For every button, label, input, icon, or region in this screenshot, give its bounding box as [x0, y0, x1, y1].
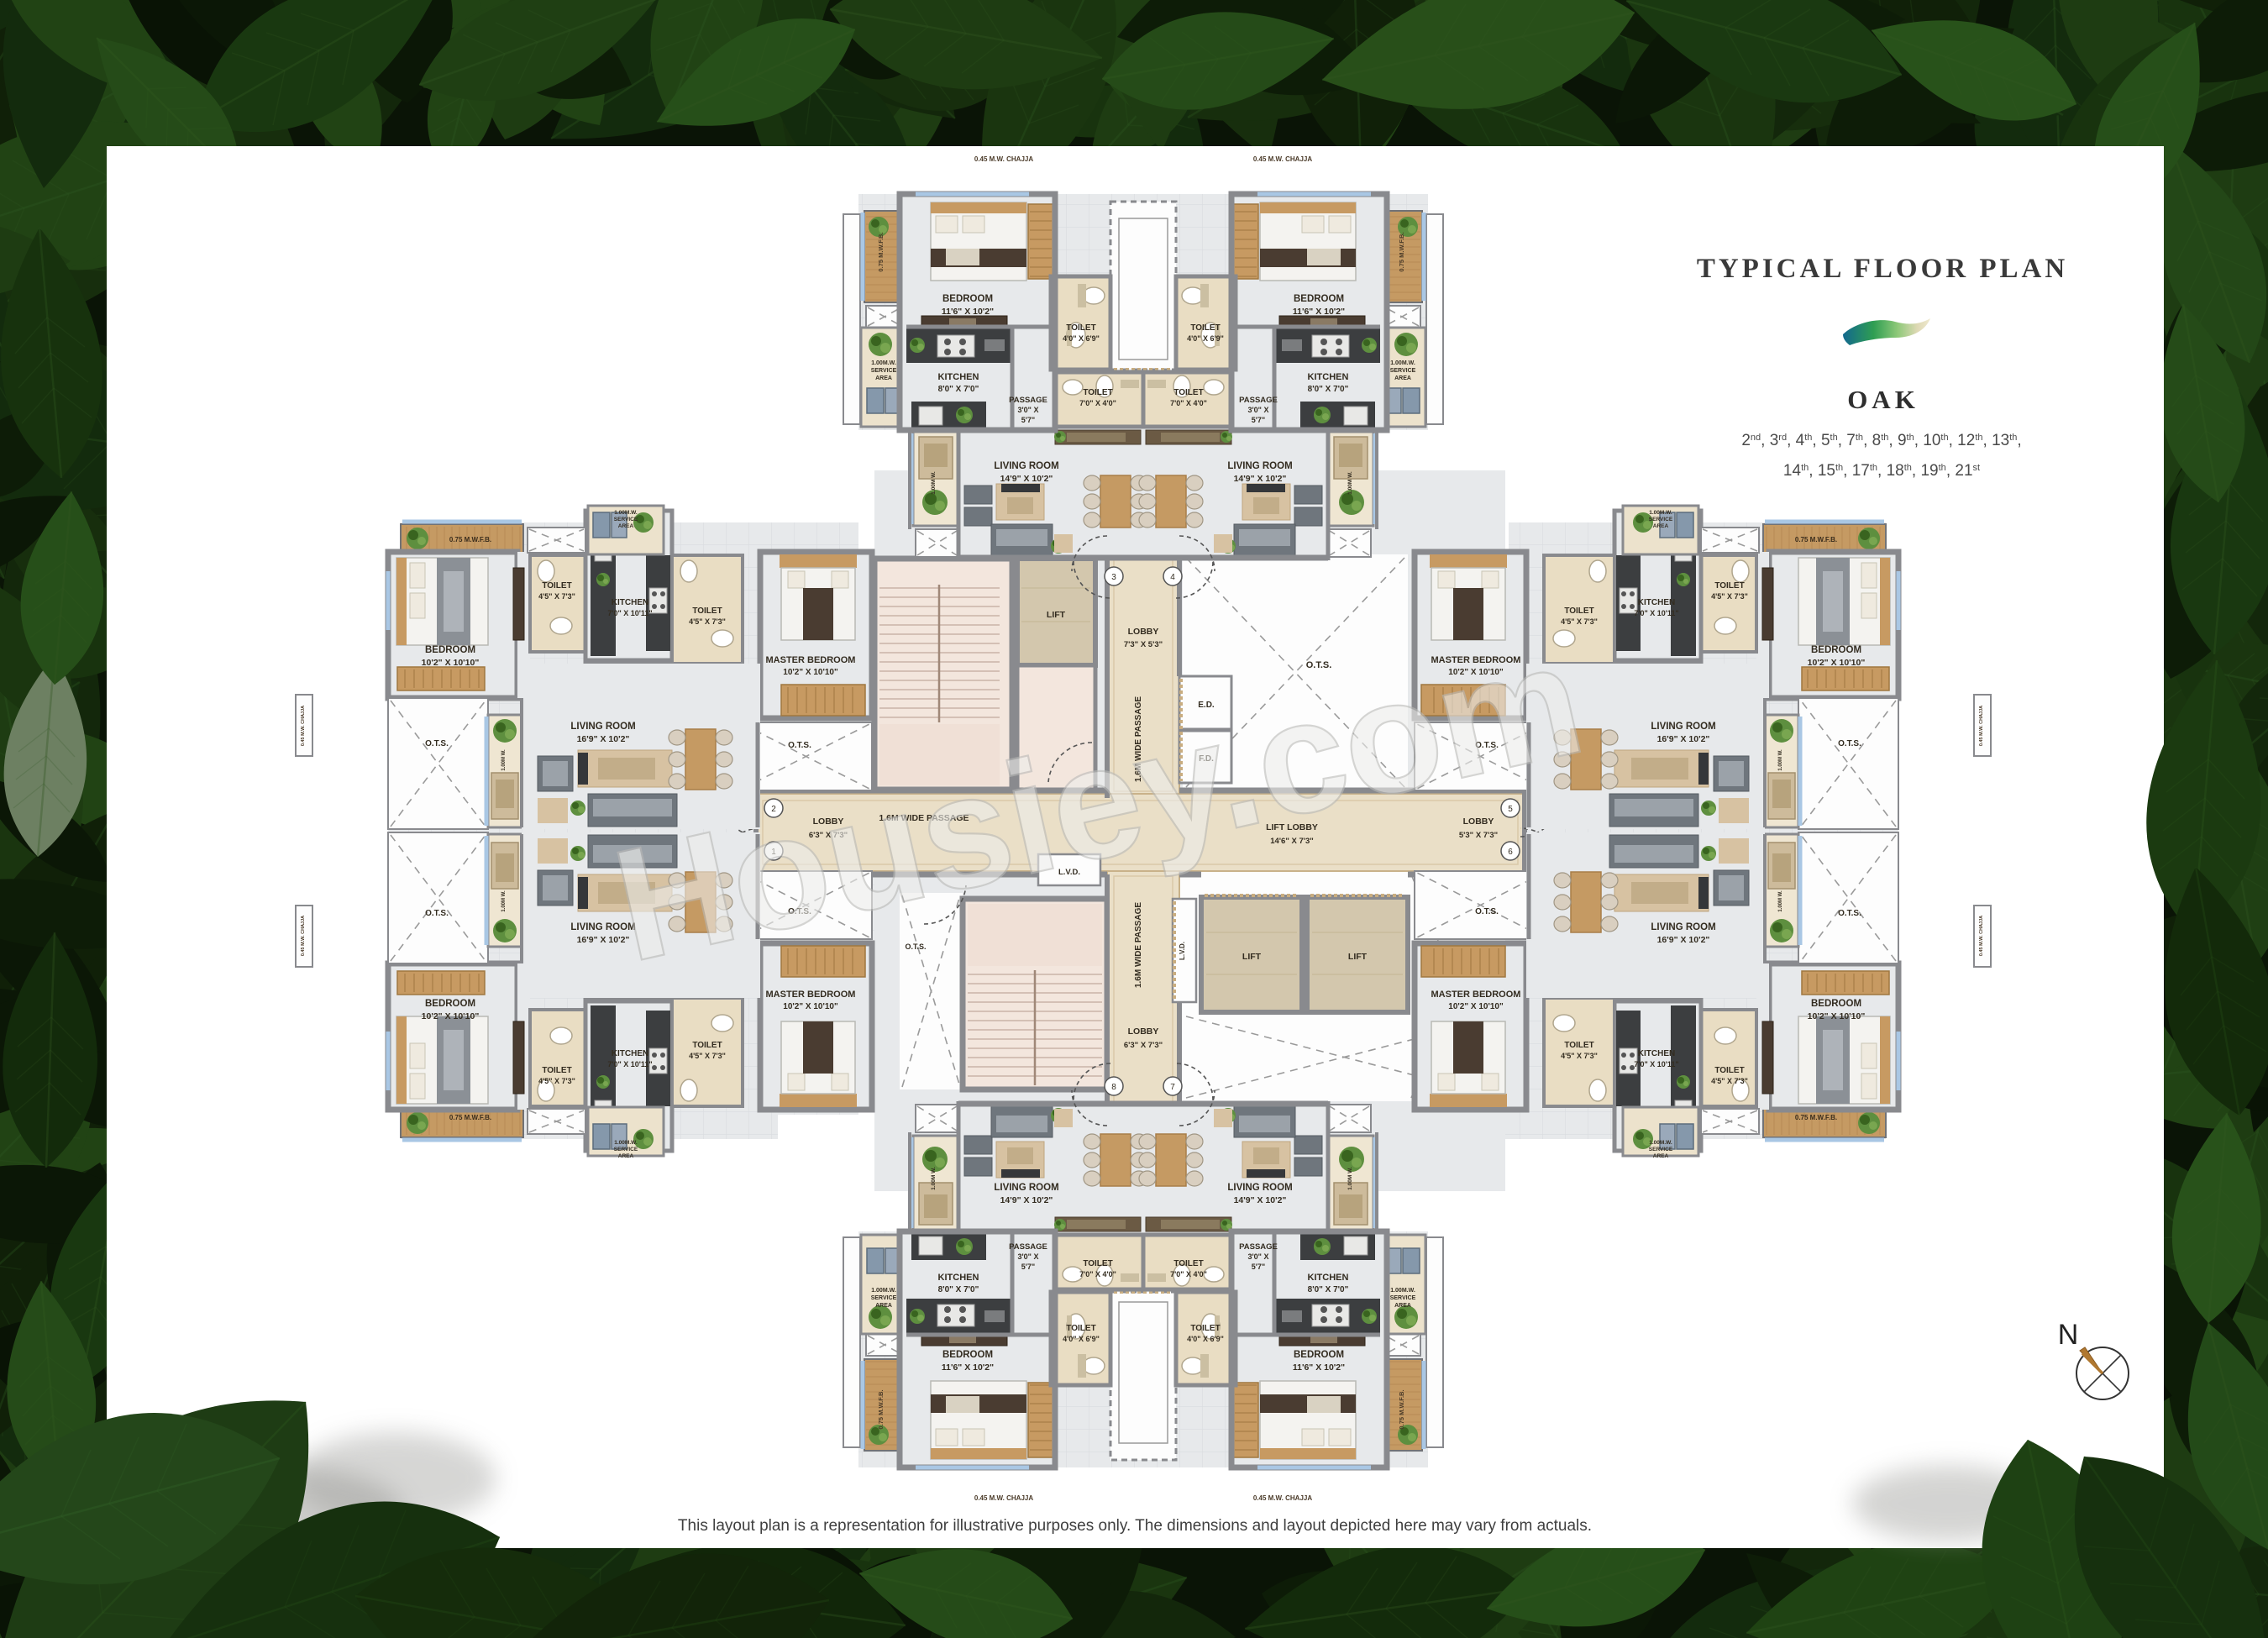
svg-text:LOBBY: LOBBY — [1128, 1026, 1159, 1037]
svg-text:7'0" X 4'0": 7'0" X 4'0" — [1170, 399, 1207, 407]
svg-text:8'0" X 7'0": 8'0" X 7'0" — [938, 1285, 979, 1294]
svg-text:16'9" X 10'2": 16'9" X 10'2" — [1657, 734, 1710, 744]
svg-text:O.T.S.: O.T.S. — [1838, 739, 1861, 748]
svg-text:8'0" X 7'0": 8'0" X 7'0" — [1308, 385, 1349, 394]
svg-text:AREA: AREA — [618, 1153, 634, 1159]
svg-text:LIVING ROOM: LIVING ROOM — [570, 722, 635, 732]
svg-text:O.T.S.: O.T.S. — [425, 739, 449, 748]
svg-text:4: 4 — [1170, 573, 1175, 582]
svg-text:TYPICAL FLOOR PLAN: TYPICAL FLOOR PLAN — [1697, 254, 2068, 284]
svg-text:0.45 M.W. CHAJJA: 0.45 M.W. CHAJJA — [301, 706, 306, 746]
svg-text:0.45 M.W. CHAJJA: 0.45 M.W. CHAJJA — [1979, 916, 1984, 956]
svg-text:14th, 15th, 17th, 18th, 19th,: 14th, 15th, 17th, 18th, 19th, 21st — [1783, 462, 1980, 480]
svg-text:1.00M W.: 1.00M W. — [1778, 749, 1783, 771]
svg-text:3'0" X: 3'0" X — [1018, 406, 1039, 414]
svg-text:8'0" X 7'0": 8'0" X 7'0" — [938, 385, 979, 394]
svg-text:6'3" X 7'3": 6'3" X 7'3" — [1124, 1041, 1163, 1050]
svg-text:7'0" X 4'0": 7'0" X 4'0" — [1079, 1270, 1116, 1278]
svg-text:KITCHEN: KITCHEN — [612, 1049, 648, 1058]
svg-text:1.00M W.: 1.00M W. — [1347, 471, 1353, 495]
svg-text:LOBBY: LOBBY — [1463, 816, 1494, 827]
svg-text:SERVICE: SERVICE — [1390, 1295, 1416, 1301]
svg-text:7'0" X 10'11": 7'0" X 10'11" — [607, 1060, 652, 1068]
svg-text:BEDROOM: BEDROOM — [942, 1350, 993, 1360]
svg-text:7'0" X 4'0": 7'0" X 4'0" — [1079, 399, 1116, 407]
svg-text:O.T.S.: O.T.S. — [425, 909, 449, 918]
svg-text:1.00M W.: 1.00M W. — [501, 890, 507, 912]
svg-text:AREA: AREA — [618, 523, 634, 529]
svg-text:0.75 M.W.F.B.: 0.75 M.W.F.B. — [1795, 536, 1837, 543]
svg-text:KITCHEN: KITCHEN — [938, 372, 979, 382]
svg-text:AREA: AREA — [1653, 523, 1669, 529]
svg-text:AREA: AREA — [1653, 1153, 1669, 1159]
svg-text:1.00M.W.: 1.00M.W. — [871, 360, 896, 366]
svg-text:8'0" X 7'0": 8'0" X 7'0" — [1308, 1285, 1349, 1294]
svg-text:4'5" X 7'3": 4'5" X 7'3" — [1561, 617, 1598, 626]
svg-text:PASSAGE: PASSAGE — [1239, 396, 1278, 405]
svg-text:7'0" X 4'0": 7'0" X 4'0" — [1170, 1270, 1207, 1278]
svg-text:0.75 M.W.F.B.: 0.75 M.W.F.B. — [877, 1389, 885, 1429]
svg-text:AREA: AREA — [875, 375, 892, 381]
svg-text:LIFT: LIFT — [1348, 952, 1368, 962]
svg-text:OAK: OAK — [1847, 385, 1919, 414]
svg-text:4'5" X 7'3": 4'5" X 7'3" — [1711, 1077, 1748, 1085]
svg-text:16'9" X 10'2": 16'9" X 10'2" — [577, 734, 630, 744]
svg-text:1.00M.W.: 1.00M.W. — [614, 510, 638, 516]
svg-text:16'9" X 10'2": 16'9" X 10'2" — [1657, 935, 1710, 945]
svg-text:O.T.S.: O.T.S. — [1475, 907, 1499, 916]
svg-text:KITCHEN: KITCHEN — [612, 598, 648, 607]
svg-text:3'0" X: 3'0" X — [1248, 406, 1269, 414]
svg-text:0.45 M.W. CHAJJA: 0.45 M.W. CHAJJA — [1253, 1494, 1312, 1502]
svg-text:5'7": 5'7" — [1252, 1263, 1265, 1271]
svg-text:SERVICE: SERVICE — [1390, 368, 1416, 374]
svg-text:O.T.S.: O.T.S. — [1838, 909, 1861, 918]
svg-text:1.00M W.: 1.00M W. — [931, 471, 937, 495]
svg-text:SERVICE: SERVICE — [871, 1295, 897, 1301]
svg-text:KITCHEN: KITCHEN — [938, 1273, 979, 1283]
svg-text:5'7": 5'7" — [1252, 416, 1265, 424]
svg-text:1.00M W.: 1.00M W. — [501, 749, 507, 771]
svg-text:LIFT: LIFT — [1047, 610, 1066, 620]
svg-text:10'2" X 10'10": 10'2" X 10'10" — [1448, 1002, 1504, 1011]
svg-text:4'0" X 6'9": 4'0" X 6'9" — [1187, 334, 1224, 343]
svg-text:TOILET: TOILET — [1190, 323, 1220, 333]
svg-text:LIVING ROOM: LIVING ROOM — [1227, 461, 1292, 471]
svg-text:TOILET: TOILET — [1564, 606, 1593, 616]
svg-text:1.00M.W.: 1.00M.W. — [614, 1140, 638, 1146]
svg-text:TOILET: TOILET — [542, 581, 571, 591]
svg-text:L.V.D.: L.V.D. — [1179, 942, 1186, 960]
svg-text:TOILET: TOILET — [1714, 1066, 1744, 1075]
svg-text:AREA: AREA — [1394, 375, 1411, 381]
svg-text:1.00M.W.: 1.00M.W. — [1390, 1288, 1415, 1294]
svg-text:0.75 M.W.F.B.: 0.75 M.W.F.B. — [1398, 1389, 1405, 1429]
svg-text:4'5" X 7'3": 4'5" X 7'3" — [1561, 1052, 1598, 1060]
svg-text:0.75 M.W.F.B.: 0.75 M.W.F.B. — [449, 536, 491, 543]
svg-text:11'6" X 10'2": 11'6" X 10'2" — [1293, 307, 1345, 317]
svg-text:SERVICE: SERVICE — [614, 1147, 638, 1152]
svg-text:TOILET: TOILET — [1066, 1324, 1095, 1333]
svg-text:LIVING ROOM: LIVING ROOM — [1651, 722, 1715, 732]
svg-text:5'7": 5'7" — [1021, 416, 1035, 424]
svg-text:5'7": 5'7" — [1021, 1263, 1035, 1271]
svg-text:TOILET: TOILET — [542, 1066, 571, 1075]
svg-text:0.75 M.W.F.B.: 0.75 M.W.F.B. — [449, 1114, 491, 1121]
svg-text:O.T.S.: O.T.S. — [788, 741, 811, 750]
svg-text:LIVING ROOM: LIVING ROOM — [1227, 1183, 1292, 1193]
svg-text:MASTER BEDROOM: MASTER BEDROOM — [766, 655, 856, 665]
svg-text:3'0" X: 3'0" X — [1248, 1252, 1269, 1261]
svg-text:PASSAGE: PASSAGE — [1009, 1242, 1047, 1252]
svg-text:BEDROOM: BEDROOM — [425, 645, 475, 655]
svg-text:10'2" X 10'10": 10'2" X 10'10" — [422, 658, 480, 668]
svg-text:14'9" X 10'2": 14'9" X 10'2" — [1234, 1195, 1287, 1205]
svg-text:4'0" X 6'9": 4'0" X 6'9" — [1187, 1335, 1224, 1343]
svg-text:7'0" X 10'11": 7'0" X 10'11" — [1634, 1060, 1678, 1068]
svg-text:TOILET: TOILET — [1714, 581, 1744, 591]
svg-text:MASTER BEDROOM: MASTER BEDROOM — [766, 990, 856, 1000]
svg-text:4'0" X 6'9": 4'0" X 6'9" — [1063, 334, 1100, 343]
svg-text:7'0" X 10'11": 7'0" X 10'11" — [607, 609, 652, 617]
svg-text:11'6" X 10'2": 11'6" X 10'2" — [942, 1362, 994, 1373]
svg-text:10'2" X 10'10": 10'2" X 10'10" — [1808, 658, 1866, 668]
svg-text:BEDROOM: BEDROOM — [942, 294, 993, 304]
svg-text:BEDROOM: BEDROOM — [1811, 999, 1861, 1009]
svg-text:1.00M W.: 1.00M W. — [931, 1167, 937, 1190]
svg-text:14'9" X 10'2": 14'9" X 10'2" — [1000, 1195, 1053, 1205]
svg-text:TOILET: TOILET — [1173, 388, 1203, 397]
svg-text:PASSAGE: PASSAGE — [1239, 1242, 1278, 1252]
svg-text:16'9" X 10'2": 16'9" X 10'2" — [577, 935, 630, 945]
svg-text:6: 6 — [1508, 848, 1513, 857]
svg-text:10'2" X 10'10": 10'2" X 10'10" — [783, 668, 838, 677]
svg-text:10'2" X 10'10": 10'2" X 10'10" — [422, 1011, 480, 1021]
svg-text:BEDROOM: BEDROOM — [1811, 645, 1861, 655]
svg-text:4'5" X 7'3": 4'5" X 7'3" — [689, 617, 726, 626]
svg-text:SERVICE: SERVICE — [871, 368, 897, 374]
svg-text:7'3" X 5'3": 7'3" X 5'3" — [1124, 640, 1163, 649]
svg-text:TOILET: TOILET — [692, 1041, 722, 1050]
svg-text:0.45 M.W. CHAJJA: 0.45 M.W. CHAJJA — [301, 916, 306, 956]
svg-text:1.00M W.: 1.00M W. — [1778, 890, 1783, 912]
svg-text:14'9" X 10'2": 14'9" X 10'2" — [1000, 474, 1053, 484]
svg-text:LIVING ROOM: LIVING ROOM — [994, 1183, 1058, 1193]
svg-text:5: 5 — [1508, 805, 1513, 814]
svg-text:11'6" X 10'2": 11'6" X 10'2" — [1293, 1362, 1345, 1373]
svg-text:1.00M.W.: 1.00M.W. — [1649, 1140, 1672, 1146]
svg-text:1.00M.W.: 1.00M.W. — [1649, 510, 1672, 516]
svg-text:TOILET: TOILET — [1083, 388, 1112, 397]
svg-text:10'2" X 10'10": 10'2" X 10'10" — [1808, 1011, 1866, 1021]
svg-text:1.00M W.: 1.00M W. — [1347, 1167, 1353, 1190]
svg-text:0.75 M.W.F.B.: 0.75 M.W.F.B. — [1795, 1114, 1837, 1121]
svg-text:8: 8 — [1111, 1083, 1116, 1092]
svg-text:5'3" X 7'3": 5'3" X 7'3" — [1459, 831, 1498, 840]
svg-text:LIFT: LIFT — [1242, 952, 1262, 962]
svg-text:KITCHEN: KITCHEN — [1308, 1273, 1349, 1283]
svg-text:SERVICE: SERVICE — [1649, 517, 1673, 522]
svg-text:14'9" X 10'2": 14'9" X 10'2" — [1234, 474, 1287, 484]
svg-text:4'5" X 7'3": 4'5" X 7'3" — [689, 1052, 726, 1060]
svg-text:1.00M.W.: 1.00M.W. — [1390, 360, 1415, 366]
svg-text:0.45 M.W. CHAJJA: 0.45 M.W. CHAJJA — [974, 155, 1033, 163]
svg-text:4'5" X 7'3": 4'5" X 7'3" — [538, 1077, 575, 1085]
svg-text:SERVICE: SERVICE — [614, 517, 638, 522]
svg-text:0.45 M.W. CHAJJA: 0.45 M.W. CHAJJA — [1979, 706, 1984, 746]
svg-text:TOILET: TOILET — [1083, 1259, 1112, 1268]
svg-text:LIVING ROOM: LIVING ROOM — [994, 461, 1058, 471]
svg-text:N: N — [2058, 1319, 2079, 1351]
svg-text:BEDROOM: BEDROOM — [1294, 1350, 1344, 1360]
svg-text:7'0" X 10'11": 7'0" X 10'11" — [1634, 609, 1678, 617]
svg-text:11'6" X 10'2": 11'6" X 10'2" — [942, 307, 994, 317]
svg-text:KITCHEN: KITCHEN — [1308, 372, 1349, 382]
svg-text:SERVICE: SERVICE — [1649, 1147, 1673, 1152]
svg-text:0.75 M.W.F.B.: 0.75 M.W.F.B. — [1398, 232, 1405, 271]
svg-text:TOILET: TOILET — [1564, 1041, 1593, 1050]
svg-text:0.75 M.W.F.B.: 0.75 M.W.F.B. — [877, 232, 885, 271]
svg-text:1.00M.W.: 1.00M.W. — [871, 1288, 896, 1294]
svg-text:LIVING ROOM: LIVING ROOM — [1651, 922, 1715, 932]
svg-text:BEDROOM: BEDROOM — [1294, 294, 1344, 304]
svg-text:0.45 M.W. CHAJJA: 0.45 M.W. CHAJJA — [974, 1494, 1033, 1502]
svg-text:TOILET: TOILET — [692, 606, 722, 616]
svg-text:TOILET: TOILET — [1190, 1324, 1220, 1333]
svg-text:4'0" X 6'9": 4'0" X 6'9" — [1063, 1335, 1100, 1343]
svg-text:This layout plan is a represen: This layout plan is a representation for… — [678, 1517, 1592, 1535]
svg-text:AREA: AREA — [875, 1303, 892, 1309]
svg-text:MASTER BEDROOM: MASTER BEDROOM — [1431, 990, 1521, 1000]
svg-text:1.6M WIDE PASSAGE: 1.6M WIDE PASSAGE — [1134, 902, 1143, 988]
svg-text:0.45 M.W. CHAJJA: 0.45 M.W. CHAJJA — [1253, 155, 1312, 163]
svg-text:AREA: AREA — [1394, 1303, 1411, 1309]
svg-text:O.T.S.: O.T.S. — [905, 942, 926, 951]
svg-text:KITCHEN: KITCHEN — [1638, 1049, 1675, 1058]
svg-text:TOILET: TOILET — [1066, 323, 1095, 333]
svg-text:BEDROOM: BEDROOM — [425, 999, 475, 1009]
svg-text:PASSAGE: PASSAGE — [1009, 396, 1047, 405]
svg-text:TOILET: TOILET — [1173, 1259, 1203, 1268]
svg-text:KITCHEN: KITCHEN — [1638, 598, 1675, 607]
svg-text:LOBBY: LOBBY — [1128, 627, 1159, 637]
svg-text:3'0" X: 3'0" X — [1018, 1252, 1039, 1261]
svg-text:4'5" X 7'3": 4'5" X 7'3" — [538, 592, 575, 601]
svg-text:7: 7 — [1170, 1083, 1175, 1092]
svg-text:10'2" X 10'10": 10'2" X 10'10" — [783, 1002, 838, 1011]
svg-text:4'5" X 7'3": 4'5" X 7'3" — [1711, 592, 1748, 601]
svg-text:3: 3 — [1111, 573, 1116, 582]
